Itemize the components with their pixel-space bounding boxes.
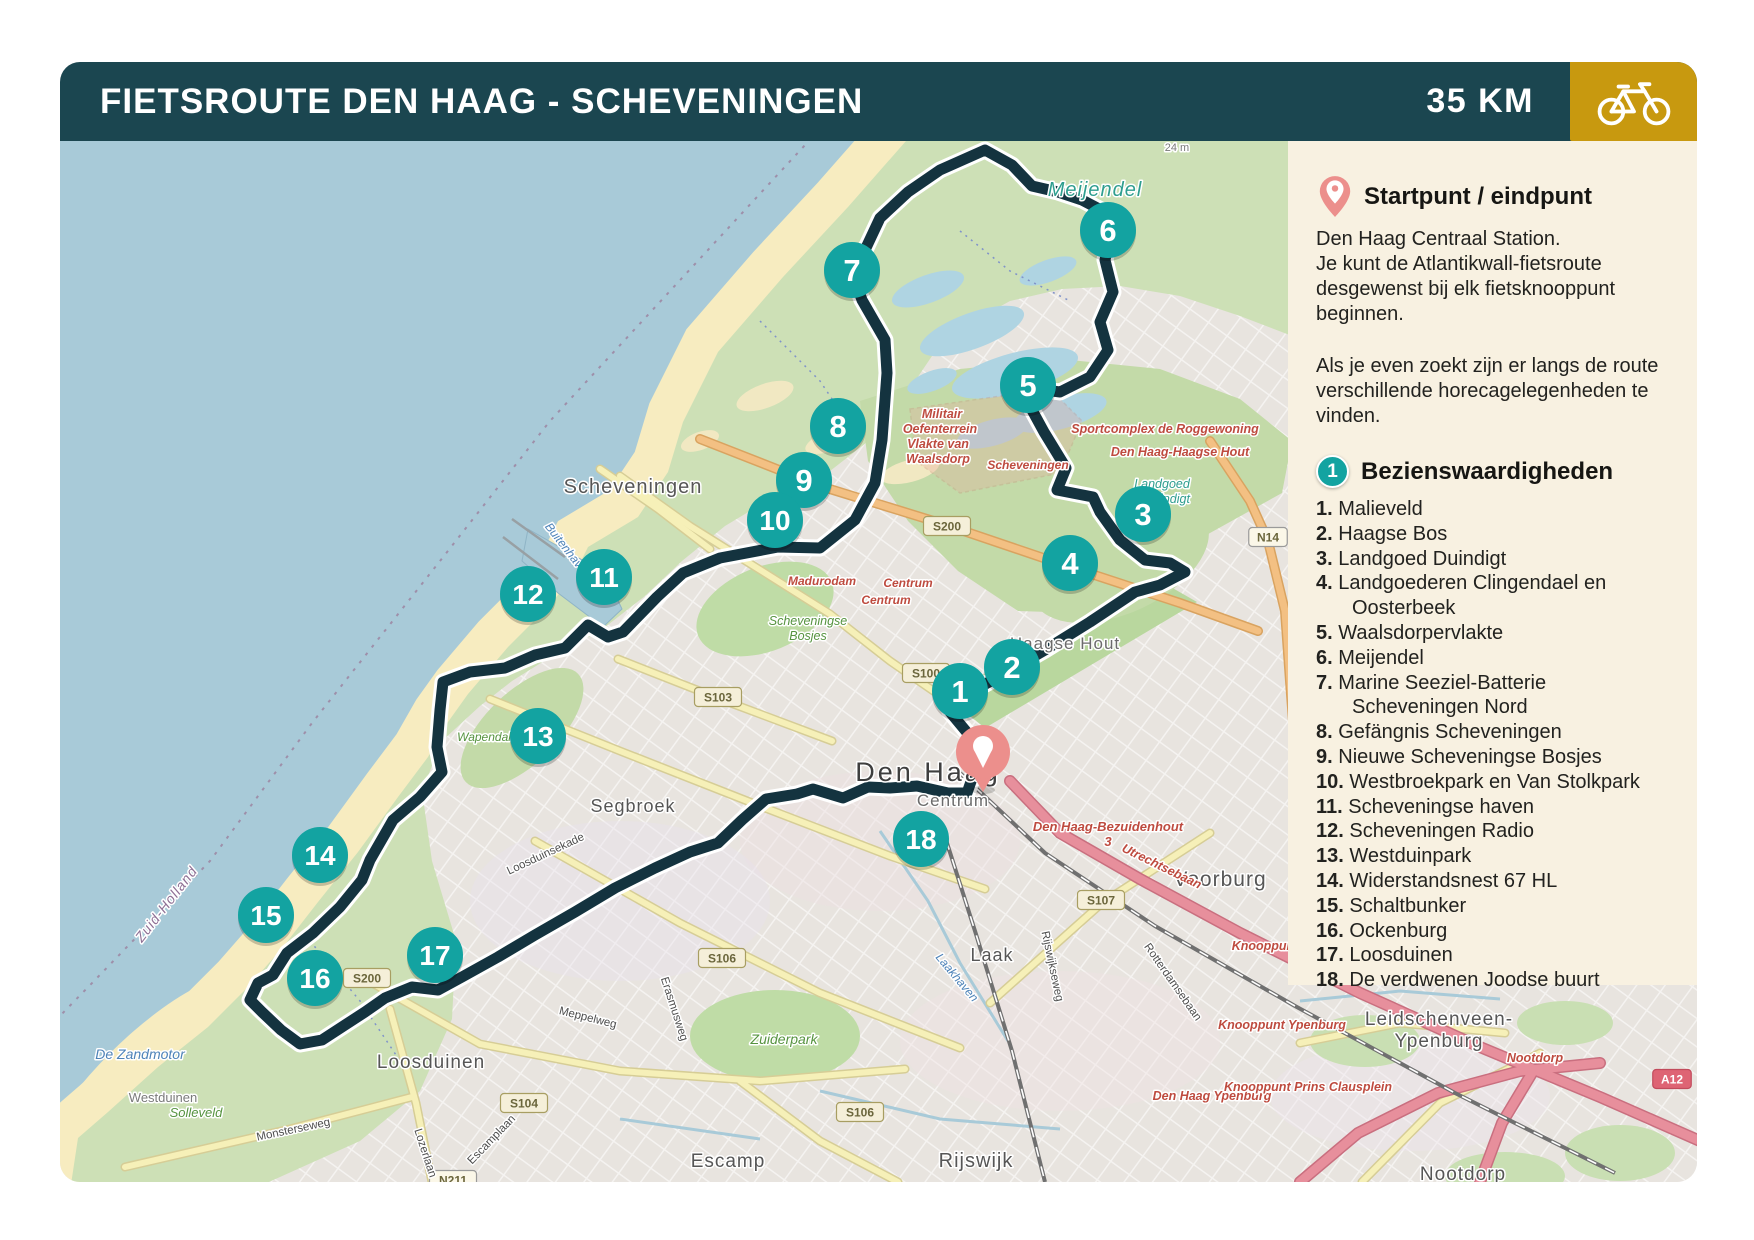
sight-item: 6. Meijendel	[1316, 646, 1669, 671]
route-marker-5[interactable]: 5	[1000, 357, 1056, 416]
map-label: Wapendal	[457, 730, 511, 744]
sights-title: Bezienswaardigheden	[1361, 458, 1613, 486]
svg-text:11: 11	[589, 562, 619, 593]
sight-item: 5. Waalsdorpervlakte	[1316, 621, 1669, 646]
svg-text:2: 2	[1003, 650, 1020, 685]
route-marker-6[interactable]: 6	[1080, 202, 1136, 261]
svg-text:N14: N14	[1257, 531, 1279, 545]
sight-item: 11. Scheveningse haven	[1316, 795, 1669, 820]
svg-text:12: 12	[512, 579, 543, 610]
sights-list: 1. Malieveld2. Haagse Bos3. Landgoed Dui…	[1316, 497, 1669, 993]
sights-section-header: 1 Bezienswaardigheden	[1316, 455, 1669, 488]
map-label: Nootdorp	[1420, 1164, 1506, 1182]
svg-text:1: 1	[951, 674, 968, 709]
route-marker-18[interactable]: 18	[893, 811, 949, 870]
route-marker-13[interactable]: 13	[510, 708, 566, 767]
svg-text:10: 10	[759, 505, 790, 536]
route-marker-11[interactable]: 11	[576, 549, 632, 608]
start-title: Startpunt / eindpunt	[1364, 183, 1592, 211]
sight-item: 12. Scheveningen Radio	[1316, 819, 1669, 844]
road-shield-S104: S104	[501, 1094, 548, 1113]
page: { "colors": { "header_teal": "#1B4650", …	[0, 0, 1754, 1240]
road-shield-S106: S106	[699, 949, 746, 968]
route-marker-15[interactable]: 15	[238, 887, 294, 946]
svg-text:S103: S103	[704, 691, 732, 705]
sight-item: 4. Landgoederen Clingendael en Oosterbee…	[1316, 571, 1669, 621]
map-label: Centrum	[861, 593, 911, 607]
sights-badge: 1	[1316, 455, 1349, 488]
road-shield-A12: A12	[1653, 1070, 1692, 1089]
svg-text:17: 17	[419, 940, 450, 971]
svg-text:13: 13	[522, 721, 553, 752]
route-marker-3[interactable]: 3	[1115, 486, 1171, 545]
map-label: Solleveld	[170, 1105, 224, 1120]
map-label: Centrum	[883, 576, 933, 590]
distance-badge: 35 KM	[1426, 82, 1534, 121]
sight-item: 8. Gefängnis Scheveningen	[1316, 720, 1669, 745]
route-marker-14[interactable]: 14	[292, 827, 348, 886]
map-label: Militair	[922, 407, 963, 421]
road-shield-S107: S107	[1078, 891, 1125, 910]
sight-item: 13. Westduinpark	[1316, 844, 1669, 869]
svg-text:9: 9	[795, 463, 812, 498]
road-shield-S200: S200	[344, 969, 391, 988]
map-label: Segbroek	[590, 796, 675, 816]
svg-text:18: 18	[905, 824, 936, 855]
route-marker-16[interactable]: 16	[287, 950, 343, 1009]
map-label: Madurodam	[788, 574, 856, 588]
start-section-header: Startpunt / eindpunt	[1316, 175, 1669, 219]
map-label: Nootdorp	[1507, 1051, 1564, 1065]
sight-item: 14. Widerstandsnest 67 HL	[1316, 869, 1669, 894]
route-marker-8[interactable]: 8	[810, 398, 866, 457]
map-label: Knooppunt Prins Clausplein	[1224, 1080, 1392, 1094]
sight-item: 15. Schaltbunker	[1316, 894, 1669, 919]
route-marker-1[interactable]: 1	[932, 663, 988, 722]
map-label: Den Haag-Bezuidenhout	[1033, 819, 1184, 834]
sight-item: 16. Ockenburg	[1316, 919, 1669, 944]
map-label: Zuiderpark	[750, 1031, 819, 1047]
route-marker-2[interactable]: 2	[984, 639, 1040, 698]
sight-item: 7. Marine Seeziel-Batterie Scheveningen …	[1316, 671, 1669, 721]
svg-text:6: 6	[1099, 213, 1116, 248]
map-label: Leidschenveen-	[1365, 1009, 1513, 1030]
svg-text:S106: S106	[846, 1106, 874, 1120]
map-label: Rijswijk	[939, 1150, 1014, 1172]
map-label: Laak	[970, 945, 1013, 965]
sight-item: 2. Haagse Bos	[1316, 522, 1669, 547]
map-label: Loosduinen	[377, 1052, 485, 1073]
map-label: Waalsdorp	[906, 452, 970, 466]
svg-text:8: 8	[829, 409, 846, 444]
road-shield-S103: S103	[695, 688, 742, 707]
svg-text:N211: N211	[439, 1174, 467, 1183]
map-label: Scheveningen	[987, 458, 1068, 472]
page-title: FIETSROUTE DEN HAAG - SCHEVENINGEN	[100, 82, 863, 122]
route-marker-12[interactable]: 12	[500, 566, 556, 625]
map-label: Scheveningen	[564, 476, 703, 498]
sight-item: 17. Loosduinen	[1316, 943, 1669, 968]
sight-item: 9. Nieuwe Scheveningse Bosjes	[1316, 745, 1669, 770]
map-label: Meijendel	[1048, 179, 1143, 201]
map-label: Sportcomplex de Roggewoning	[1071, 422, 1259, 436]
map-label: Westduinen	[129, 1090, 197, 1105]
poster-frame: S200S200S100S103S104S106S106S107N14N211A…	[60, 62, 1697, 1182]
info-panel: Startpunt / eindpunt Den Haag Centraal S…	[1288, 141, 1697, 985]
header-bar: FIETSROUTE DEN HAAG - SCHEVENINGEN 35 KM	[60, 62, 1697, 141]
road-shield-N14: N14	[1249, 528, 1288, 547]
sight-item: 3. Landgoed Duindigt	[1316, 547, 1669, 572]
sight-item: 18. De verdwenen Joodse buurt	[1316, 968, 1669, 993]
map-label: Den Haag-Haagse Hout	[1111, 445, 1250, 459]
bicycle-icon	[1596, 78, 1672, 126]
start-line: Je kunt de Atlantikwall-fietsroute desge…	[1316, 252, 1669, 327]
location-pin-icon	[1316, 175, 1354, 219]
svg-text:S106: S106	[708, 952, 736, 966]
svg-text:S107: S107	[1087, 894, 1115, 908]
svg-text:5: 5	[1019, 368, 1036, 403]
svg-text:4: 4	[1061, 546, 1079, 581]
map-label: Knooppunt Ypenburg	[1218, 1018, 1346, 1032]
map-label: Escamp	[691, 1151, 766, 1172]
svg-text:3: 3	[1134, 497, 1151, 532]
svg-text:A12: A12	[1661, 1073, 1683, 1087]
route-marker-17[interactable]: 17	[407, 927, 463, 986]
svg-text:7: 7	[843, 253, 860, 288]
map-label: Scheveningse	[769, 614, 848, 628]
sight-item: 10. Westbroekpark en Van Stolkpark	[1316, 770, 1669, 795]
bike-icon-tile	[1570, 62, 1697, 141]
sight-item: 1. Malieveld	[1316, 497, 1669, 522]
svg-text:S200: S200	[353, 972, 381, 986]
svg-text:16: 16	[299, 963, 330, 994]
start-line: Den Haag Centraal Station.	[1316, 227, 1669, 252]
route-marker-7[interactable]: 7	[824, 242, 880, 301]
map-label: Ypenburg	[1395, 1031, 1484, 1052]
map-label: De Zandmotor	[95, 1046, 186, 1062]
map-label: 3	[1104, 834, 1112, 849]
map-label: Oefenterrein	[903, 422, 978, 436]
horeca-note: Als je even zoekt zijn er langs de route…	[1316, 354, 1669, 429]
map-label: 24 m	[1165, 142, 1189, 154]
route-marker-10[interactable]: 10	[747, 492, 803, 551]
svg-text:S104: S104	[510, 1097, 538, 1111]
route-marker-4[interactable]: 4	[1042, 535, 1098, 594]
svg-text:15: 15	[250, 900, 281, 931]
svg-text:14: 14	[304, 840, 336, 871]
map-label: Centrum	[917, 791, 989, 810]
road-shield-S200: S200	[924, 517, 971, 536]
map-label: Bosjes	[789, 629, 827, 643]
road-shield-S106: S106	[837, 1103, 884, 1122]
start-description: Den Haag Centraal Station.Je kunt de Atl…	[1316, 227, 1669, 327]
svg-text:S200: S200	[933, 520, 961, 534]
map-label: Vlakte van	[907, 437, 969, 451]
